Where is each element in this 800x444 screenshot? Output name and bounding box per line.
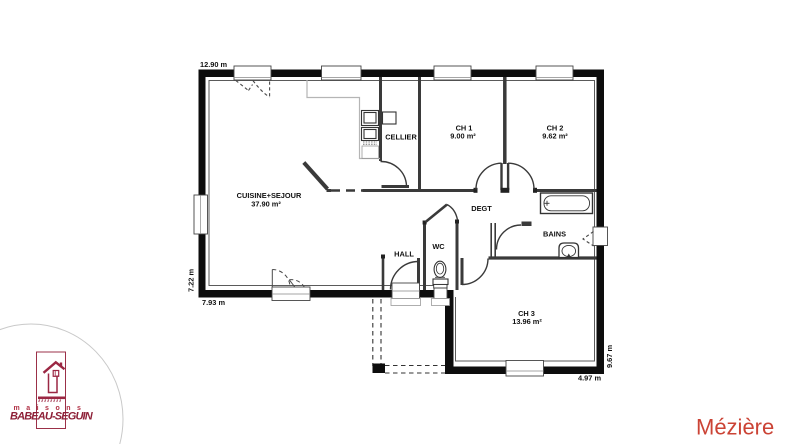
svg-text:37.90 m²: 37.90 m² bbox=[251, 200, 281, 209]
svg-text:7.93 m: 7.93 m bbox=[202, 298, 225, 307]
svg-text:4.97 m: 4.97 m bbox=[578, 374, 601, 383]
svg-text:Mézière: Mézière bbox=[696, 415, 774, 440]
svg-text:7.22 m: 7.22 m bbox=[187, 269, 196, 292]
svg-text:DEGT: DEGT bbox=[471, 204, 492, 213]
svg-text:12.90 m: 12.90 m bbox=[200, 60, 228, 69]
svg-text:9.00 m²: 9.00 m² bbox=[450, 132, 476, 141]
svg-text:BAINS: BAINS bbox=[543, 230, 566, 239]
svg-text:WC: WC bbox=[432, 242, 445, 251]
svg-text:CELLIER: CELLIER bbox=[385, 133, 417, 142]
svg-text:9.67 m: 9.67 m bbox=[605, 345, 614, 368]
svg-text:9.62 m²: 9.62 m² bbox=[542, 132, 568, 141]
svg-text:HALL: HALL bbox=[394, 250, 414, 259]
svg-text:13.96 m²: 13.96 m² bbox=[512, 317, 542, 326]
svg-text:BABEAU-SEGUIN: BABEAU-SEGUIN bbox=[10, 411, 94, 423]
